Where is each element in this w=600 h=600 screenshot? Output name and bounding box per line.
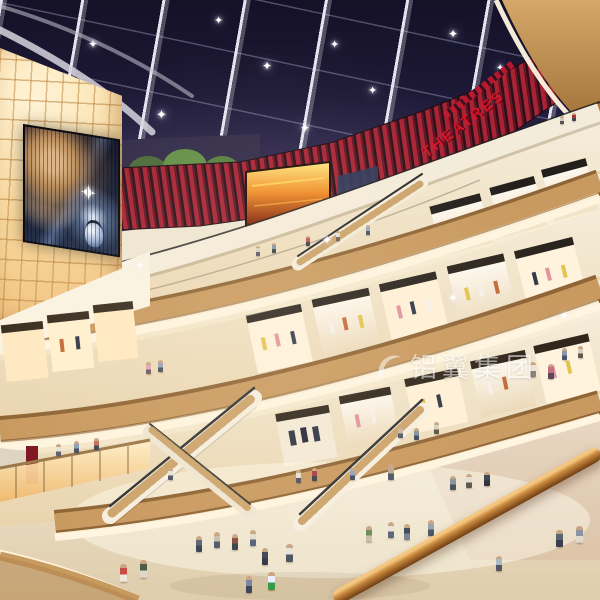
watermark-text: 铝翼集团 [410,346,538,385]
person [262,548,268,565]
person [272,243,276,253]
person [398,426,403,438]
person [120,564,127,582]
person [232,534,238,550]
person [196,536,202,552]
person [414,428,419,440]
person [548,364,554,379]
person [388,464,394,480]
person [296,470,301,483]
sparkle-light-icon: ✦ [136,262,144,272]
person [250,530,256,546]
person [388,522,394,538]
person [572,113,576,121]
sparkle-light-icon: ✦ [322,234,332,246]
person [256,246,260,256]
person [466,474,472,488]
billboard-sparkle-icon: ✦ [79,181,97,206]
person [312,468,317,481]
person [336,231,340,241]
person [168,468,173,480]
person [450,476,456,490]
perfume-bottle-graphic [85,222,103,249]
person [306,236,310,246]
person [578,346,583,358]
watermark-logo-swoosh-icon [372,350,404,382]
person [556,530,563,547]
person [140,560,147,578]
person [404,524,410,540]
person [496,556,502,571]
person [366,526,372,542]
person [350,468,355,480]
person [560,116,564,124]
person [56,444,61,456]
person [268,572,275,590]
perfume-ad-led-billboard: ✦ [23,124,120,257]
watermark: 铝翼集团 [372,346,538,385]
person [428,520,434,536]
person [562,348,567,360]
person [246,576,252,593]
person [146,362,151,374]
sparkle-light-icon: ✦ [448,292,458,304]
person [366,225,370,235]
mall-atrium-rendering: ✦ ✦ ✦ ✦ ✦ ✦ ✦ ✦ ✦ [0,0,600,600]
person [484,472,490,486]
person [158,360,163,372]
sparkle-light-icon: ✦ [560,312,568,322]
person [94,438,99,450]
person [434,422,439,434]
person [576,526,583,543]
person [214,532,220,548]
person [286,544,293,562]
person [74,441,79,453]
